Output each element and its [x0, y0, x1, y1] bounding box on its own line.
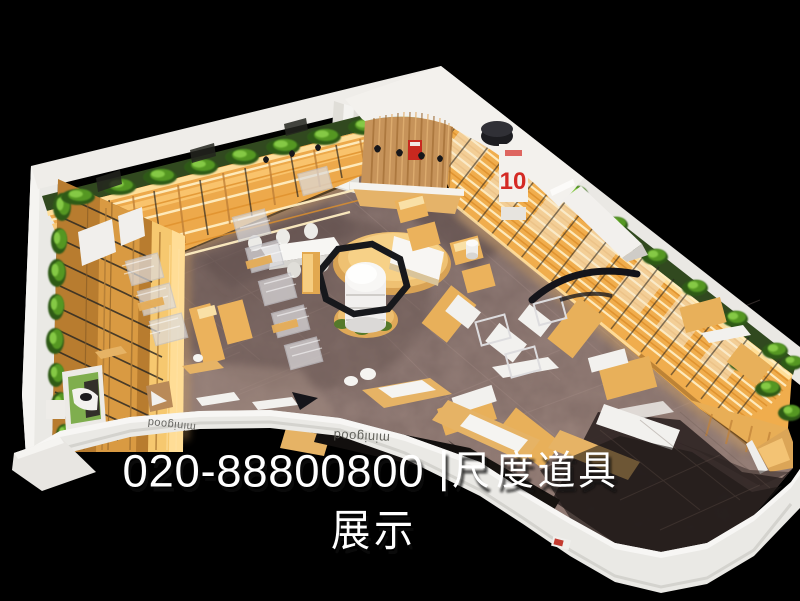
svg-text:020-88800800: 020-88800800	[123, 446, 424, 497]
svg-text:minigood: minigood	[333, 428, 390, 446]
svg-text:10: 10	[500, 168, 527, 195]
